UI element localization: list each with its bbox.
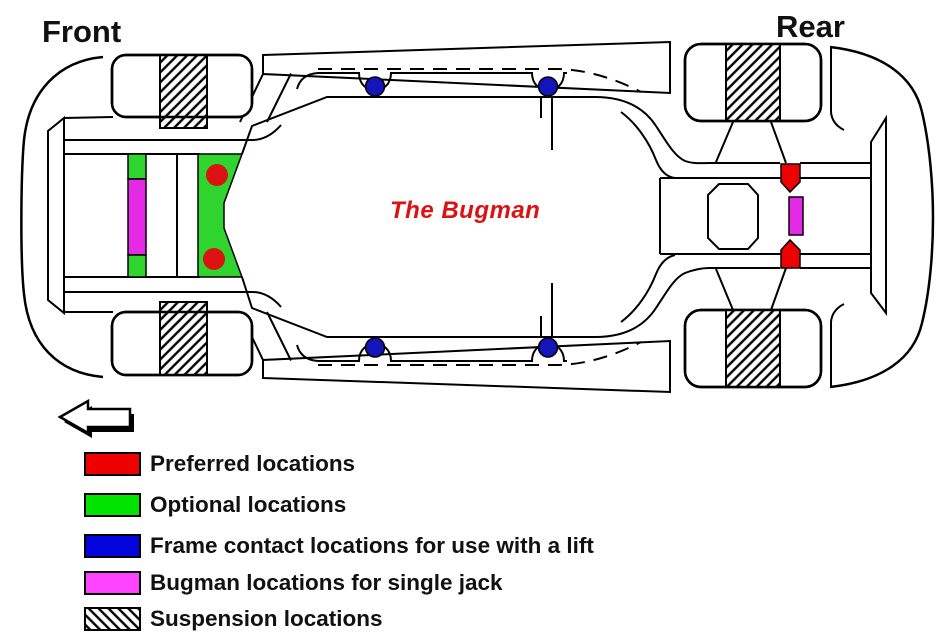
legend-label-suspension: Suspension locations (150, 606, 383, 631)
rear-frame-assembly (621, 112, 886, 322)
legend-swatch-single-jack (85, 572, 140, 594)
legend-swatch-preferred (85, 453, 140, 475)
legend-row-preferred: Preferred locations (85, 451, 355, 476)
fork-inner-top (621, 112, 675, 178)
lift-contact-marker-top-front (366, 77, 385, 96)
rear-bumper-bracket (871, 118, 886, 313)
transmission-octagon (708, 184, 758, 249)
running-board-top (263, 42, 670, 93)
legend-row-suspension: Suspension locations (85, 606, 383, 631)
rear-fender-line-top (831, 48, 844, 130)
lift-contact-marker-bottom-front (366, 338, 385, 357)
legend-row-single-jack: Bugman locations for single jack (85, 570, 503, 595)
front-wheel-connect-lines (64, 117, 113, 312)
tunnel-cross-lines (541, 97, 552, 337)
chassis-diagram-svg: The Bugman Preferred locations Optional … (0, 0, 950, 638)
transmission-box (660, 178, 781, 254)
single-jack-bar-rear (789, 197, 803, 235)
spring-plate-lines-top (716, 122, 786, 163)
rear-body-arc (830, 47, 933, 387)
legend-row-optional: Optional locations (85, 492, 346, 517)
preferred-location-marker-rear-top (781, 164, 800, 192)
preferred-location-marker-front-top (206, 164, 228, 186)
suspension-hatch-rear-top (726, 44, 780, 121)
legend-label-single-jack: Bugman locations for single jack (150, 570, 503, 595)
legend-label-optional: Optional locations (150, 492, 346, 517)
single-jack-bar-front (128, 179, 146, 255)
fork-inner-bottom (621, 255, 675, 322)
suspension-hatch-rear-bottom (726, 310, 780, 387)
front-bumper-bracket (48, 118, 64, 313)
legend-row-lift: Frame contact locations for use with a l… (85, 533, 594, 558)
arrow-body (60, 401, 130, 433)
rear-fender-line-bottom (831, 304, 844, 386)
rear-rails (800, 163, 871, 268)
brand-text: The Bugman (390, 197, 540, 224)
legend-label-preferred: Preferred locations (150, 451, 355, 476)
optional-area-bar-top (128, 154, 146, 179)
optional-area-bar-bottom (128, 255, 146, 277)
legend-swatch-lift (85, 535, 140, 557)
legend-label-lift: Frame contact locations for use with a l… (150, 533, 594, 558)
legend: Preferred locations Optional locations F… (85, 451, 594, 631)
front-label: Front (42, 14, 121, 49)
front-axle-assembly (48, 117, 281, 313)
rear-label: Rear (776, 9, 845, 44)
front-direction-arrow-icon (60, 401, 134, 438)
legend-swatch-suspension (85, 608, 140, 630)
preferred-location-marker-rear-bottom (781, 240, 800, 268)
front-body-arc (21, 57, 103, 377)
spring-plate-lines-bottom (716, 268, 786, 310)
legend-swatch-optional (85, 494, 140, 516)
lift-contact-marker-bottom-rear (539, 338, 558, 357)
diagram-canvas: The Bugman Preferred locations Optional … (0, 0, 950, 638)
running-board-bottom (263, 341, 670, 392)
preferred-location-marker-front-bottom (203, 248, 225, 270)
lift-contact-marker-top-rear (539, 77, 558, 96)
